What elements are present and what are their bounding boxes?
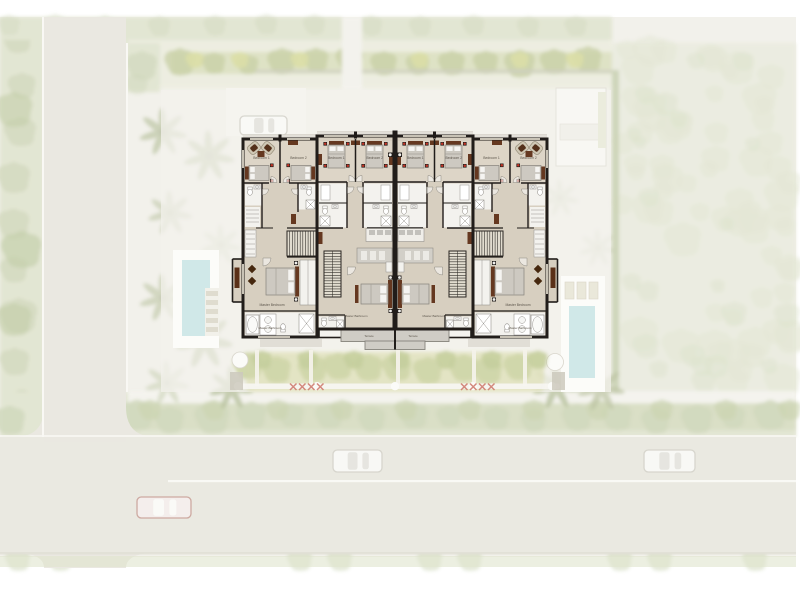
svg-text:Bedroom 1: Bedroom 1 <box>483 156 500 160</box>
svg-text:Bedroom 2: Bedroom 2 <box>290 156 307 160</box>
svg-text:Bedroom 1: Bedroom 1 <box>328 156 345 160</box>
svg-text:Master Bathroom: Master Bathroom <box>508 326 532 330</box>
svg-text:Bedroom 1: Bedroom 1 <box>253 156 270 160</box>
svg-text:Bedroom 2: Bedroom 2 <box>520 156 537 160</box>
svg-text:Master Bathroom: Master Bathroom <box>422 314 446 318</box>
svg-text:Terrace: Terrace <box>364 334 374 338</box>
svg-text:Master Bedroom: Master Bedroom <box>259 303 284 307</box>
svg-text:Master Bathroom: Master Bathroom <box>344 314 368 318</box>
svg-text:Master Bathroom: Master Bathroom <box>258 326 282 330</box>
svg-text:Bedroom 2: Bedroom 2 <box>366 156 383 160</box>
svg-text:Master Bedroom: Master Bedroom <box>505 303 530 307</box>
svg-text:Bedroom 2: Bedroom 2 <box>445 156 462 160</box>
svg-text:Bedroom 1: Bedroom 1 <box>407 156 424 160</box>
svg-text:Terrace: Terrace <box>408 334 418 338</box>
